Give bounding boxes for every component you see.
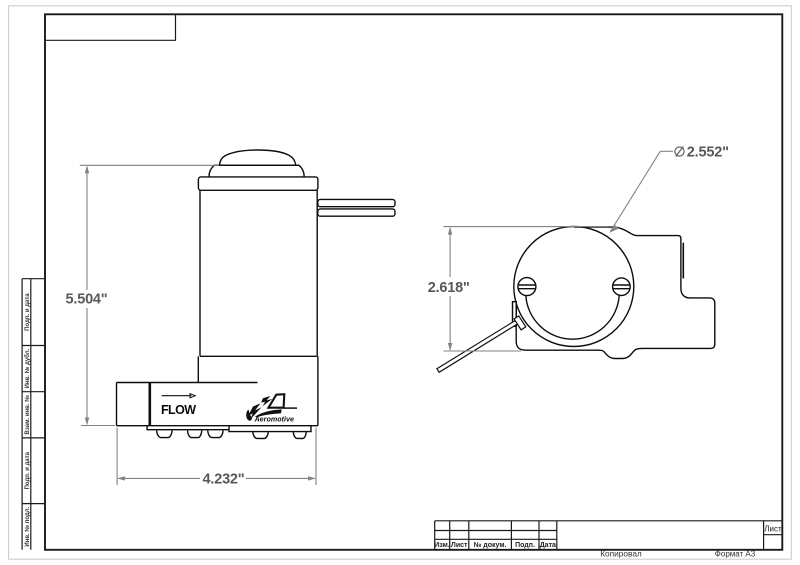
svg-text:№ докум.: № докум.	[474, 541, 507, 549]
svg-text:Подп.: Подп.	[515, 542, 535, 549]
svg-text:Взам. инв. №: Взам. инв. №	[24, 395, 31, 435]
svg-text:Лист: Лист	[451, 542, 468, 549]
svg-text:2.552": 2.552"	[687, 144, 729, 160]
svg-text:Дата: Дата	[540, 542, 556, 549]
svg-text:Изм.: Изм.	[434, 542, 450, 549]
svg-text:5.504": 5.504"	[66, 292, 108, 308]
svg-text:Подп. и дата: Подп. и дата	[25, 451, 31, 489]
svg-text:Лист: Лист	[764, 525, 782, 534]
svg-text:4.232": 4.232"	[203, 472, 245, 488]
svg-text:2.618": 2.618"	[428, 280, 470, 296]
svg-text:Aeromotive: Aeromotive	[254, 414, 294, 423]
svg-text:Подп. и дата: Подп. и дата	[25, 293, 31, 331]
svg-text:Инв. № дубл.: Инв. № дубл.	[24, 348, 31, 388]
svg-text:Инв. № подл.: Инв. № подл.	[24, 506, 31, 546]
svg-text:Формат А3: Формат А3	[715, 550, 756, 559]
svg-text:Копировал: Копировал	[600, 548, 642, 558]
svg-text:FLOW: FLOW	[161, 403, 196, 417]
